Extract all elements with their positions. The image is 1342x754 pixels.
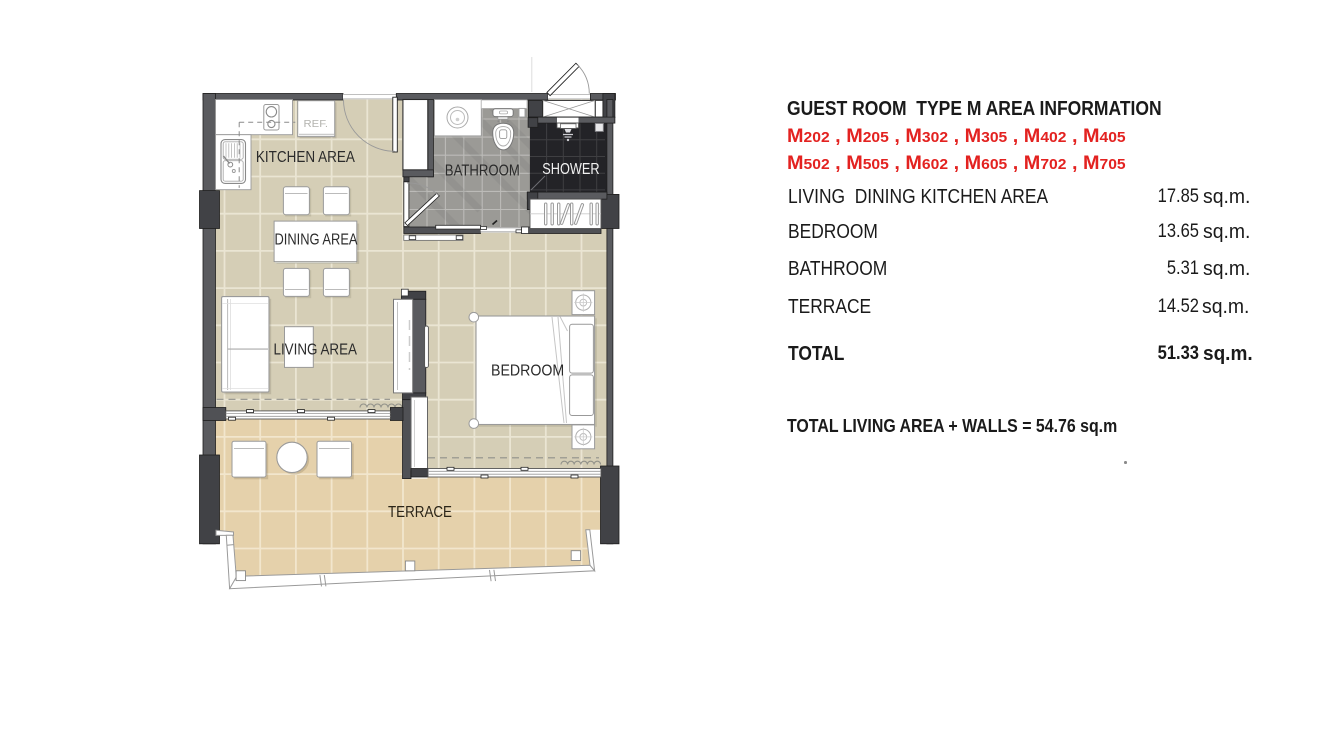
svg-text:BATHROOM: BATHROOM [445, 163, 520, 180]
svg-text:KITCHEN AREA: KITCHEN AREA [256, 149, 356, 166]
svg-text:SHOWER: SHOWER [542, 161, 599, 178]
svg-text:TERRACE: TERRACE [388, 504, 452, 521]
svg-text:BEDROOM: BEDROOM [491, 362, 564, 379]
svg-text:DINING AREA: DINING AREA [275, 232, 359, 249]
svg-text:LIVING AREA: LIVING AREA [274, 342, 358, 359]
svg-text:REF.: REF. [304, 118, 329, 130]
